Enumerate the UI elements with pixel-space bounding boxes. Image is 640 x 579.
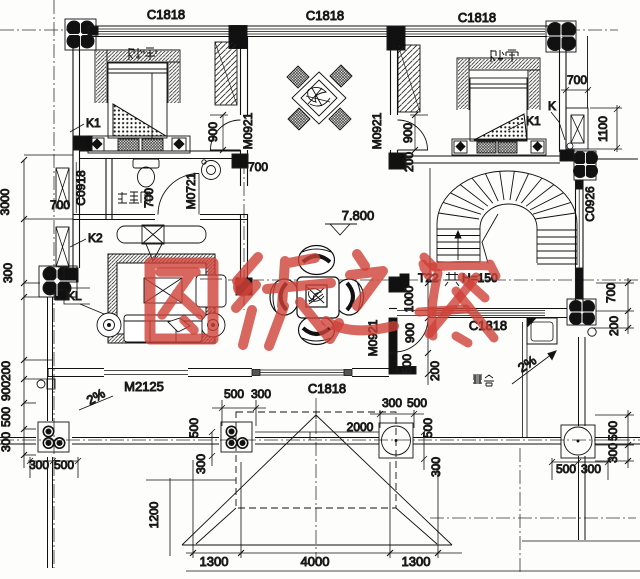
svg-text:300: 300 xyxy=(1,263,15,283)
svg-text:300: 300 xyxy=(429,457,443,477)
svg-text:900: 900 xyxy=(403,323,417,343)
svg-text:K1: K1 xyxy=(526,114,541,128)
svg-text:C1818: C1818 xyxy=(147,7,185,22)
svg-text:1300: 1300 xyxy=(200,554,229,569)
svg-text:M0921: M0921 xyxy=(370,112,384,149)
svg-text:300: 300 xyxy=(194,454,208,474)
svg-text:7.800: 7.800 xyxy=(342,208,375,223)
svg-text:3000: 3000 xyxy=(0,188,12,215)
svg-text:200: 200 xyxy=(0,361,13,381)
svg-text:700: 700 xyxy=(50,198,70,212)
svg-text:300: 300 xyxy=(606,443,620,463)
svg-text:500: 500 xyxy=(54,458,74,472)
svg-text:C1818: C1818 xyxy=(458,10,496,25)
svg-text:C1818: C1818 xyxy=(308,381,346,396)
svg-text:500: 500 xyxy=(556,462,576,476)
svg-text:M0721: M0721 xyxy=(184,172,198,209)
svg-text:700: 700 xyxy=(567,73,587,87)
svg-text:300: 300 xyxy=(382,396,402,410)
svg-text:900: 900 xyxy=(0,381,13,401)
svg-text:1200: 1200 xyxy=(147,501,161,528)
svg-text:500: 500 xyxy=(606,421,620,441)
svg-text:200: 200 xyxy=(402,152,416,172)
svg-text:300: 300 xyxy=(0,432,13,452)
svg-text:300: 300 xyxy=(251,387,271,401)
svg-text:900: 900 xyxy=(401,123,415,143)
svg-text:700: 700 xyxy=(604,283,618,303)
svg-text:500: 500 xyxy=(400,354,414,374)
svg-text:KL: KL xyxy=(67,289,82,303)
svg-text:500: 500 xyxy=(421,418,435,438)
svg-text:500: 500 xyxy=(0,407,13,427)
svg-text:200: 200 xyxy=(607,316,621,336)
svg-text:K: K xyxy=(548,99,556,113)
svg-text:500: 500 xyxy=(407,396,427,410)
svg-text:1100: 1100 xyxy=(596,116,610,142)
svg-text:500: 500 xyxy=(224,387,244,401)
svg-text:C0926: C0926 xyxy=(583,186,597,222)
svg-text:200: 200 xyxy=(428,361,442,381)
svg-text:1000: 1000 xyxy=(402,285,416,312)
svg-text:300: 300 xyxy=(29,458,49,472)
svg-text:500: 500 xyxy=(187,418,201,438)
svg-text:4000: 4000 xyxy=(301,554,330,569)
svg-text:C0918: C0918 xyxy=(74,170,88,206)
svg-text:300: 300 xyxy=(581,462,601,476)
svg-text:2000: 2000 xyxy=(347,420,374,434)
svg-text:700: 700 xyxy=(248,160,268,174)
svg-text:K1: K1 xyxy=(86,116,101,130)
svg-text:M0921: M0921 xyxy=(241,112,255,149)
svg-text:C1818: C1818 xyxy=(306,8,344,23)
svg-text:M2125: M2125 xyxy=(124,379,164,394)
svg-text:K2: K2 xyxy=(88,231,103,245)
svg-text:1300: 1300 xyxy=(402,554,431,569)
svg-text:900: 900 xyxy=(206,122,220,142)
